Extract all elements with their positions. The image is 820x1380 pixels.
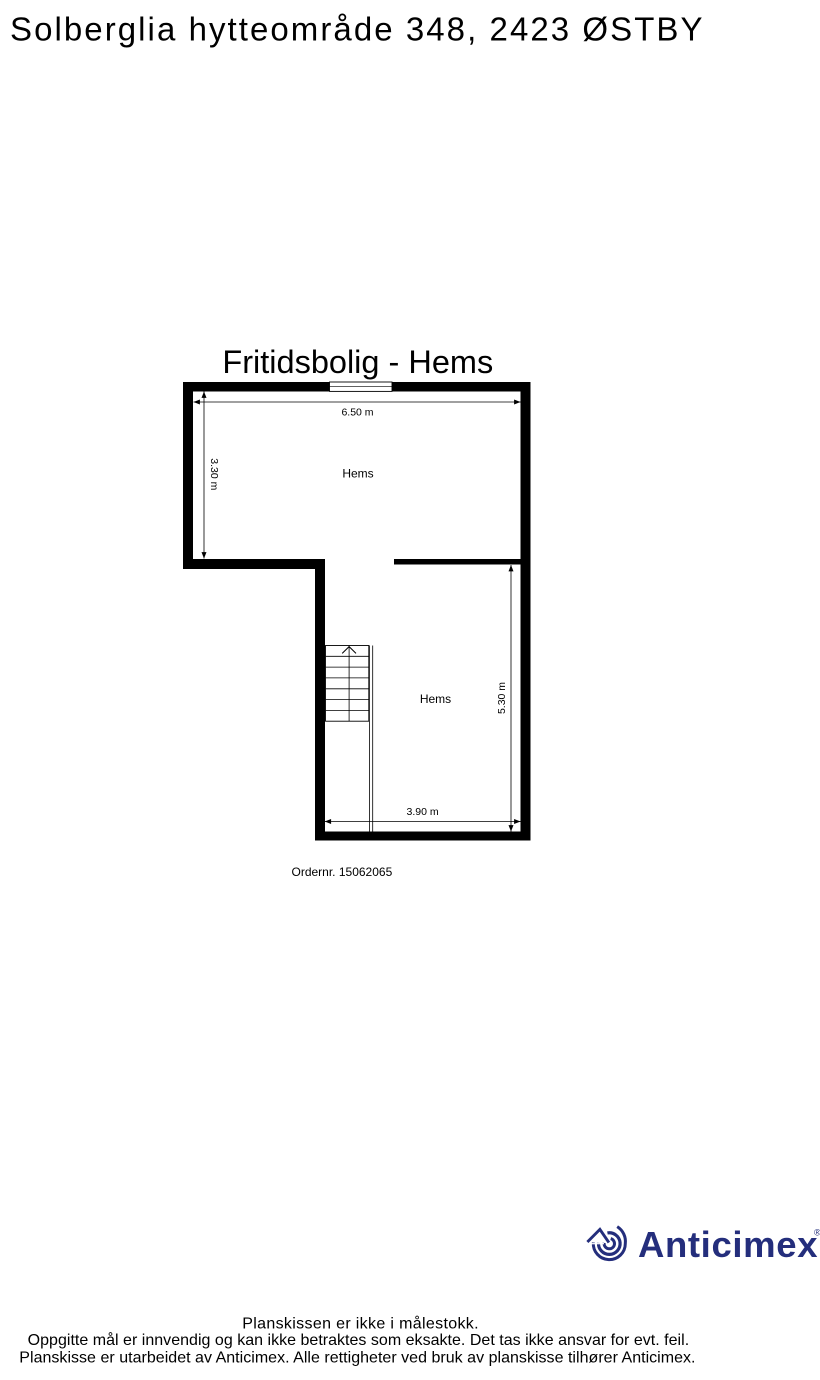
svg-text:Anticimex: Anticimex: [638, 1224, 818, 1265]
svg-text:3.30 m: 3.30 m: [208, 458, 220, 490]
svg-text:3.90 m: 3.90 m: [407, 806, 439, 818]
svg-text:Planskissen er ikke i målestok: Planskissen er ikke i målestokk.: [242, 1315, 478, 1333]
svg-text:Solberglia hytteområde 348, 24: Solberglia hytteområde 348, 2423 ØSTBY: [10, 10, 703, 47]
svg-text:Oppgitte mål er innvendig og k: Oppgitte mål er innvendig og kan ikke be…: [28, 1331, 690, 1349]
svg-text:Hems: Hems: [420, 692, 451, 706]
svg-text:Fritidsbolig - Hems: Fritidsbolig - Hems: [222, 344, 493, 380]
svg-text:®: ®: [814, 1228, 820, 1238]
svg-text:Ordernr. 15062065: Ordernr. 15062065: [292, 865, 393, 879]
svg-text:Planskisse er utarbeidet av An: Planskisse er utarbeidet av Anticimex. A…: [19, 1350, 695, 1367]
svg-text:6.50 m: 6.50 m: [341, 407, 373, 419]
svg-text:5.30 m: 5.30 m: [496, 682, 508, 714]
svg-text:Hems: Hems: [342, 467, 373, 481]
